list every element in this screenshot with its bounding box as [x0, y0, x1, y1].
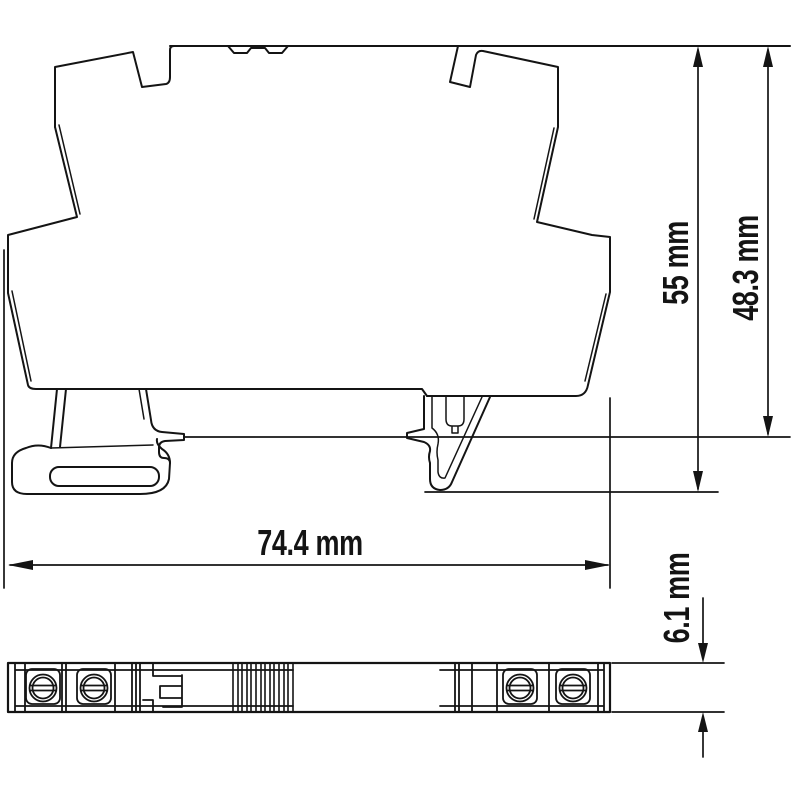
dim-61-arrow-down [698, 643, 708, 663]
screw-head-outer [30, 675, 57, 702]
screw-head-inner [510, 678, 531, 699]
dimension-label-depth-6-1mm: 6.1 mm [656, 553, 698, 644]
screw-terminal-2 [77, 669, 111, 704]
screw-terminal-1 [26, 669, 60, 704]
dim-744-arrow-left [8, 560, 33, 570]
screw-slot [81, 686, 107, 691]
body-right-section [427, 46, 610, 396]
screw-head-outer [81, 675, 108, 702]
technical-drawing-canvas: 74.4 mm 55 mm 48.3 mm 6.1 mm [0, 0, 800, 800]
screw-slot [30, 686, 56, 691]
dim-483-arrow-up [763, 46, 773, 67]
dimension-drawing [0, 0, 800, 800]
screw-head-inner [84, 678, 105, 699]
screw-head-inner [563, 678, 584, 699]
foot-jaw-left [51, 389, 66, 448]
dim-55-arrow-down [693, 471, 703, 492]
dim-61-arrow-up [698, 712, 708, 732]
dim-61-extension-lines [612, 663, 724, 712]
screw-terminal-4 [556, 669, 590, 704]
screw-slot [507, 686, 533, 691]
bevel-lines [12, 125, 606, 381]
latch-outer [407, 396, 490, 490]
dimension-label-height-55mm: 55 mm [655, 221, 697, 305]
foot-slot [50, 467, 159, 486]
dimension-label-width-74-4mm: 74.4 mm [257, 522, 362, 564]
bottom-view [8, 663, 610, 712]
top-marker-notch [228, 46, 288, 53]
screw-head-outer [560, 675, 587, 702]
dimension-lines [4, 46, 790, 757]
dimension-label-rail-height-48-3mm: 48.3 mm [725, 215, 767, 320]
body-left-flap [55, 46, 174, 127]
dim-55-arrow-up [693, 46, 703, 67]
din-rail-foot [12, 389, 184, 494]
screw-slot [560, 686, 586, 691]
rail-latch [407, 396, 490, 490]
body-left-lower [8, 127, 427, 396]
screw-head-inner [33, 678, 54, 699]
dim-483-arrow-down [763, 416, 773, 437]
dim-744-arrow-right [585, 560, 610, 570]
foot-top-edge [51, 445, 153, 448]
screw-terminal-3 [503, 669, 537, 704]
latch-box [446, 397, 464, 433]
screw-head-outer [507, 675, 534, 702]
foot-jaw-inner [139, 389, 144, 419]
